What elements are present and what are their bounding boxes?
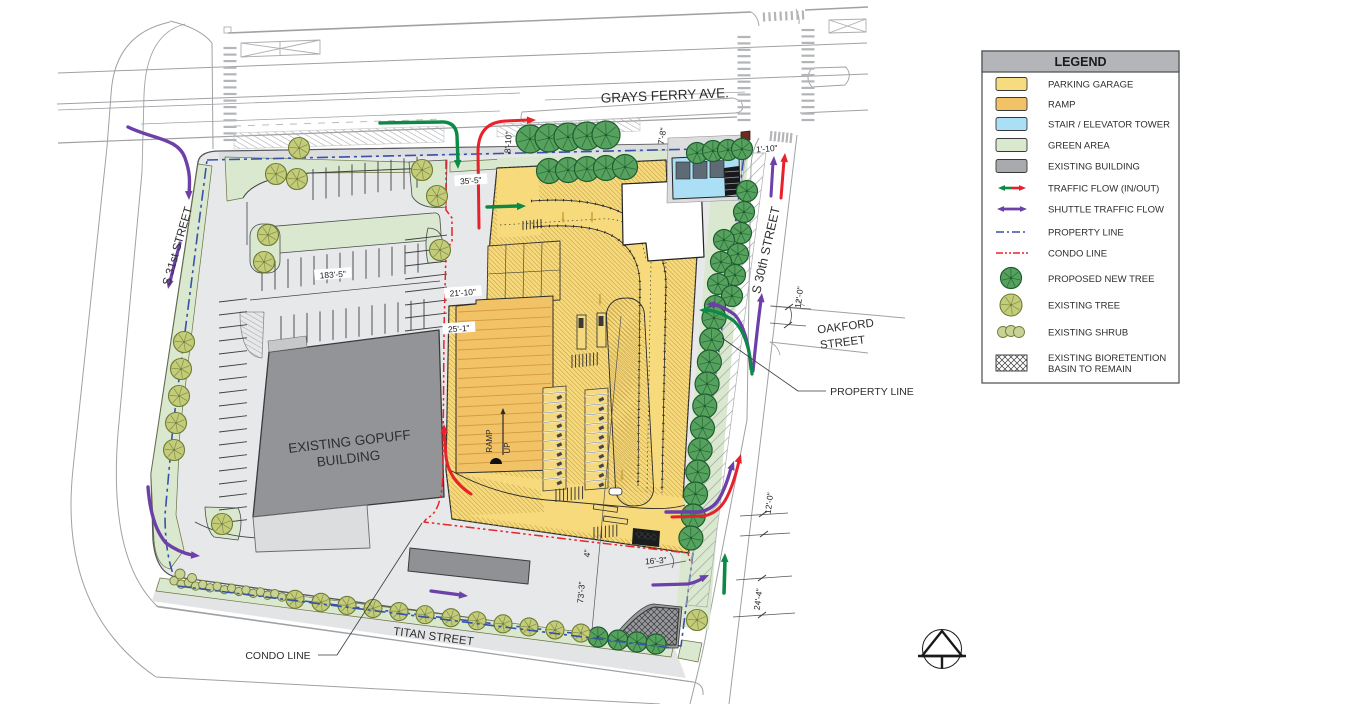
svg-text:73'-3": 73'-3" [575, 581, 587, 603]
svg-text:25'-1": 25'-1" [448, 323, 470, 334]
svg-text:1'-10": 1'-10" [756, 143, 778, 154]
svg-text:GREEN AREA: GREEN AREA [1048, 141, 1110, 152]
svg-text:LEGEND: LEGEND [1054, 55, 1106, 69]
svg-text:EXISTING BUILDING: EXISTING BUILDING [1048, 162, 1140, 173]
svg-text:21'-10": 21'-10" [449, 287, 476, 299]
svg-text:UP: UP [503, 442, 512, 453]
svg-text:183'-5": 183'-5" [319, 269, 346, 281]
svg-text:RAMP: RAMP [1048, 100, 1075, 111]
svg-text:RAMP: RAMP [485, 429, 494, 452]
svg-text:EXISTING BIORETENTION: EXISTING BIORETENTION [1048, 353, 1166, 364]
svg-text:8'-10": 8'-10" [502, 131, 513, 153]
svg-text:SHUTTLE TRAFFIC FLOW: SHUTTLE TRAFFIC FLOW [1048, 205, 1164, 216]
svg-text:PROPOSED NEW TREE: PROPOSED NEW TREE [1048, 274, 1154, 285]
svg-text:16'-3": 16'-3" [645, 555, 667, 566]
svg-text:EXISTING TREE: EXISTING TREE [1048, 301, 1120, 312]
svg-text:CONDO LINE: CONDO LINE [1048, 249, 1107, 260]
svg-text:PARKING GARAGE: PARKING GARAGE [1048, 80, 1133, 91]
svg-text:4": 4" [582, 549, 593, 558]
svg-text:PROPERTY LINE: PROPERTY LINE [830, 386, 914, 398]
svg-text:STAIR / ELEVATOR TOWER: STAIR / ELEVATOR TOWER [1048, 120, 1170, 131]
svg-text:BASIN TO REMAIN: BASIN TO REMAIN [1048, 364, 1132, 375]
svg-text:CONDO LINE: CONDO LINE [245, 650, 310, 662]
svg-text:TRAFFIC FLOW (IN/OUT): TRAFFIC FLOW (IN/OUT) [1048, 184, 1159, 195]
svg-text:35'-5": 35'-5" [460, 175, 482, 186]
svg-text:EXISTING SHRUB: EXISTING SHRUB [1048, 328, 1128, 339]
svg-text:PROPERTY LINE: PROPERTY LINE [1048, 228, 1124, 239]
